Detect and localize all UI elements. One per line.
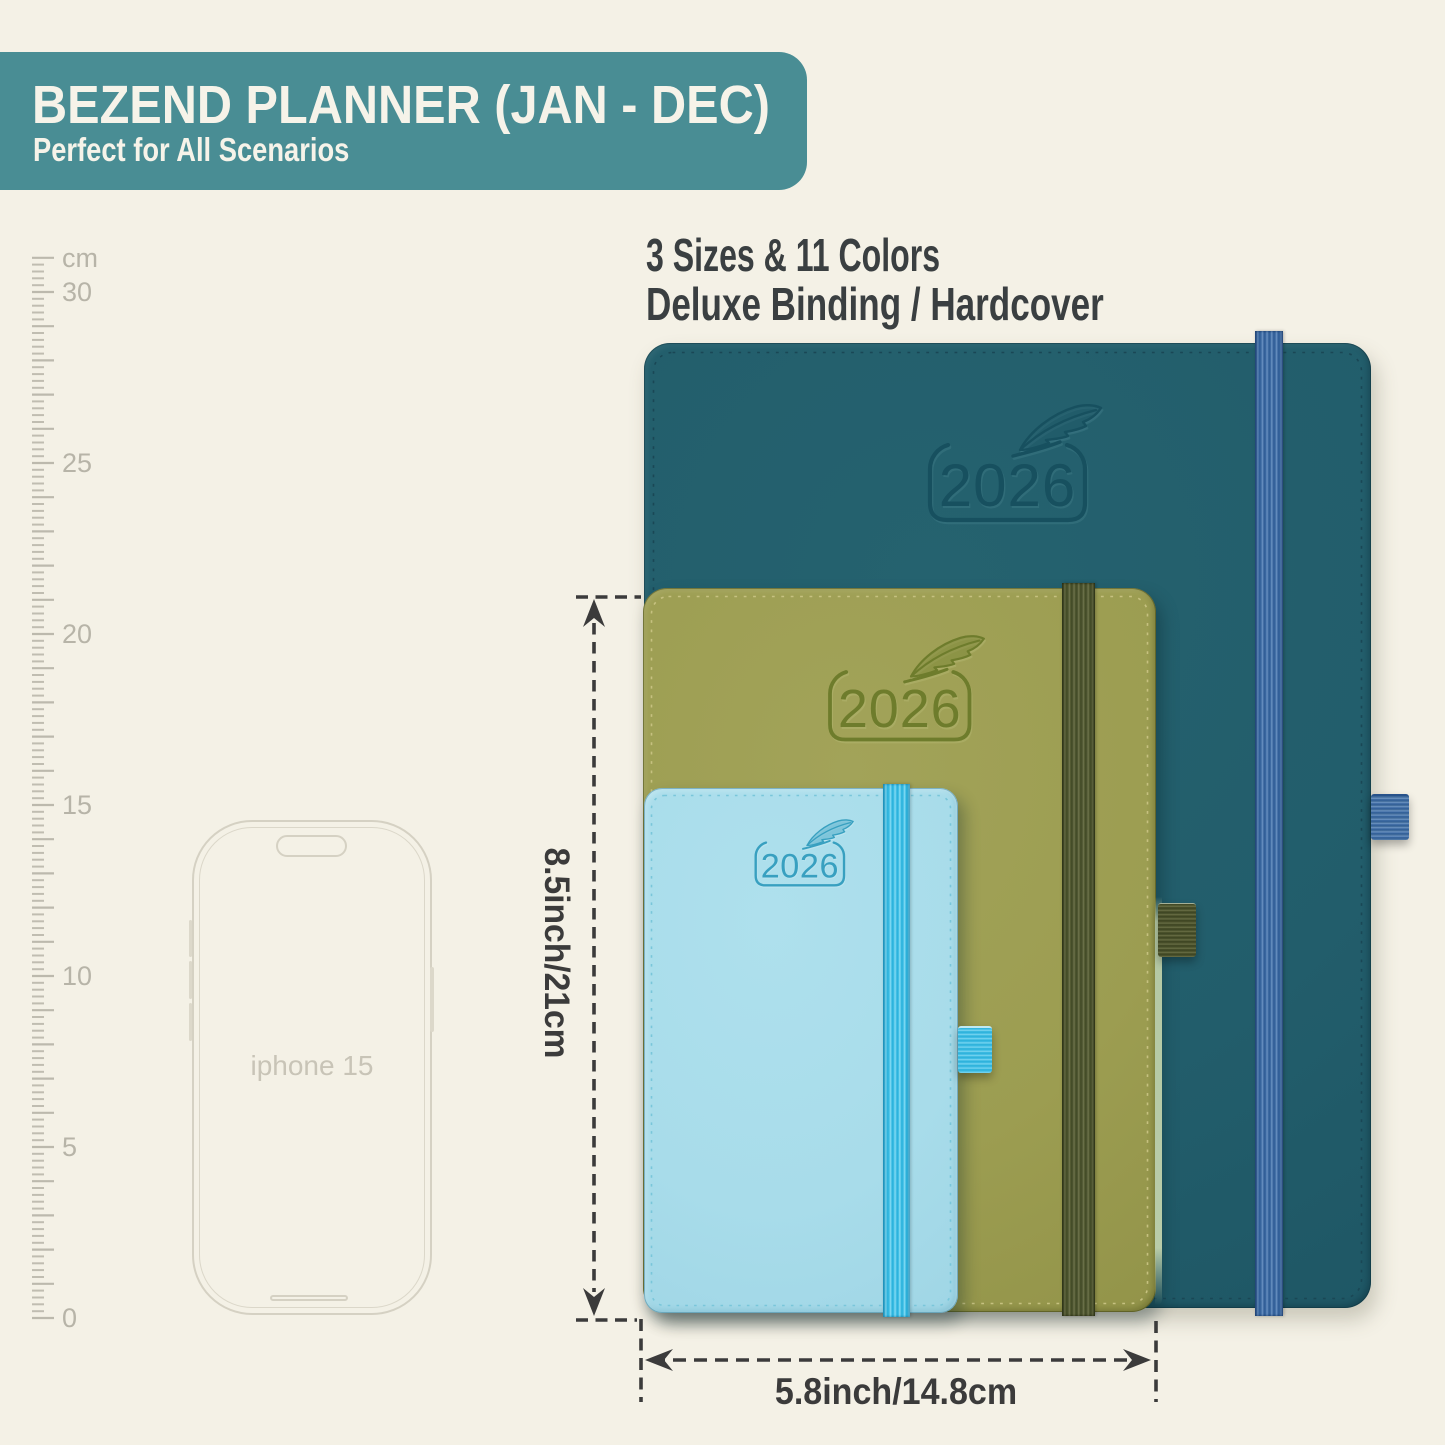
svg-text:10: 10 [62, 961, 92, 991]
svg-text:0: 0 [62, 1303, 77, 1333]
svg-text:cm: cm [62, 243, 98, 273]
svg-text:15: 15 [62, 790, 92, 820]
svg-text:30: 30 [62, 277, 92, 307]
svg-text:25: 25 [62, 448, 92, 478]
svg-text:5: 5 [62, 1132, 77, 1162]
svg-text:20: 20 [62, 619, 92, 649]
